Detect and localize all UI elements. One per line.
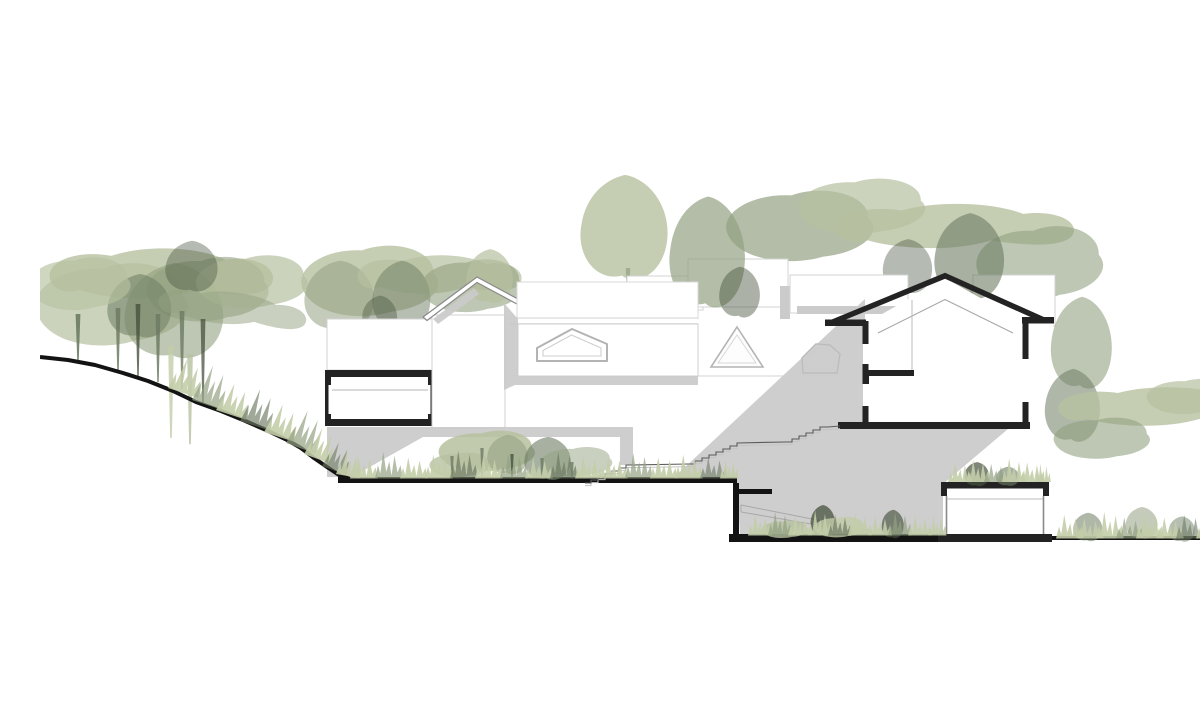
basement-room-interior xyxy=(945,488,1045,535)
clerestory-volume xyxy=(517,282,698,319)
left-room-wall-left xyxy=(325,385,329,416)
mezzanine-slab xyxy=(863,370,914,376)
flat-roof-volume xyxy=(509,282,698,376)
right-bush-and-sapling xyxy=(1045,297,1200,541)
gable-house-wall xyxy=(432,315,505,428)
basement-room xyxy=(938,482,1052,542)
section-drawing-svg xyxy=(40,16,1200,703)
floor-slab xyxy=(838,422,1030,429)
left-room-interior xyxy=(327,373,432,421)
left-elevation-volume xyxy=(327,319,432,370)
roof-slab xyxy=(509,318,698,324)
right-terrace-grass xyxy=(1056,507,1200,542)
cut-wall-left xyxy=(863,321,869,423)
step-landing-slab xyxy=(738,489,772,494)
basement-room-floor-slab xyxy=(938,534,1052,542)
left-wing xyxy=(325,319,434,426)
eave-slab-left xyxy=(825,320,866,327)
left-tree-cluster xyxy=(40,241,309,444)
section-drawing xyxy=(40,16,1200,703)
shadow-stair-strip xyxy=(620,437,633,465)
bg-volume-3-shadow xyxy=(780,286,790,319)
